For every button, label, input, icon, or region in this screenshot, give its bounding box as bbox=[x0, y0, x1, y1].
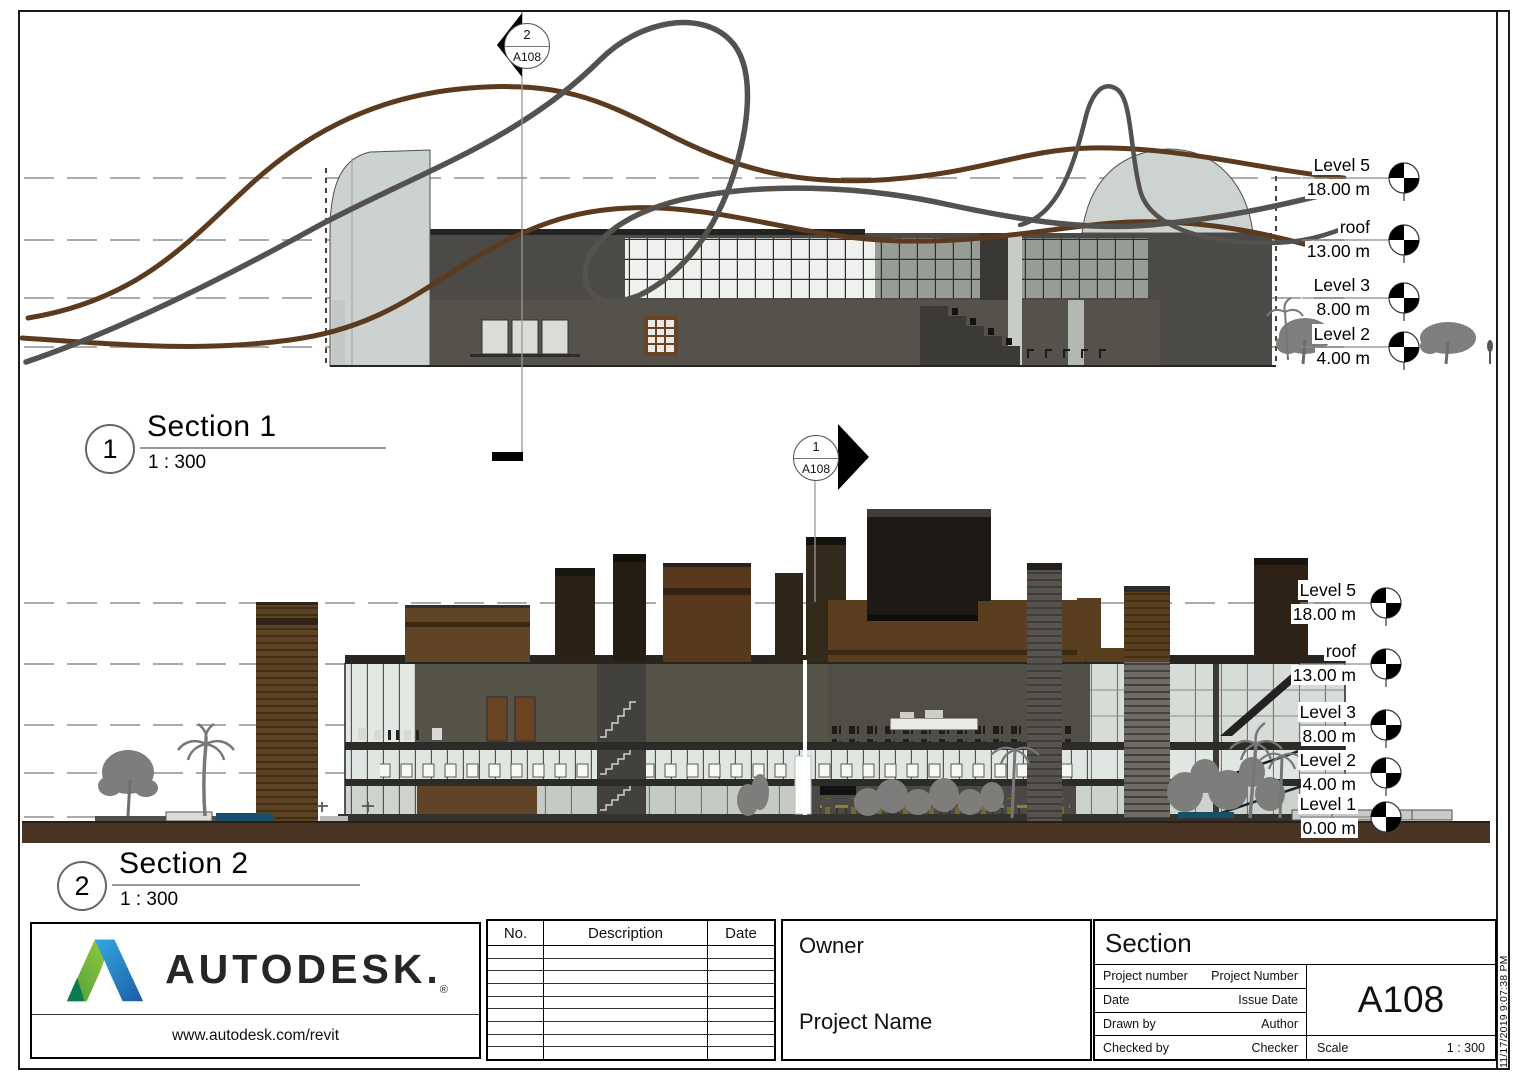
autodesk-logo-icon bbox=[61, 931, 149, 1007]
revision-row bbox=[488, 1022, 774, 1035]
viewport2-number-bubble: 2 bbox=[57, 861, 107, 911]
level-label: Level 1 bbox=[1238, 796, 1358, 814]
revision-rows bbox=[488, 946, 774, 1059]
level-elevation: 18.00 m bbox=[1238, 606, 1358, 624]
level-label: Level 5 bbox=[1252, 157, 1372, 175]
section-arrow-icon bbox=[838, 424, 869, 490]
marker-detail-number: 1 bbox=[794, 436, 838, 459]
sheet-title: Section bbox=[1095, 921, 1495, 965]
level-elevation: 18.00 m bbox=[1252, 181, 1372, 199]
scale-field: Scale1 : 300 bbox=[1307, 1036, 1495, 1059]
level-elevation: 4.00 m bbox=[1252, 350, 1372, 368]
owner-label: Owner bbox=[799, 933, 1074, 959]
viewport-number: 1 bbox=[102, 434, 117, 465]
viewport2-title[interactable]: Section 2 bbox=[119, 847, 249, 881]
marker-detail-number: 2 bbox=[505, 24, 549, 47]
section1-drawing bbox=[326, 149, 1276, 367]
project-name-label: Project Name bbox=[799, 1009, 932, 1035]
level-elevation: 0.00 m bbox=[1238, 820, 1358, 838]
revision-col-no: No. bbox=[488, 921, 544, 945]
field-checked-by: Checked byChecker bbox=[1095, 1036, 1307, 1059]
field-drawn-by: Drawn byAuthor bbox=[1095, 1013, 1307, 1037]
revision-row bbox=[488, 959, 774, 972]
level-elevation: 13.00 m bbox=[1252, 243, 1372, 261]
revision-row bbox=[488, 997, 774, 1010]
field-date: DateIssue Date bbox=[1095, 989, 1307, 1013]
owner-panel: Owner Project Name bbox=[781, 919, 1092, 1061]
level-elevation: 13.00 m bbox=[1238, 667, 1358, 685]
revision-table-header: No. Description Date bbox=[488, 921, 774, 946]
viewport1-title[interactable]: Section 1 bbox=[147, 410, 277, 444]
section-marker-mid[interactable]: 1 A108 bbox=[793, 435, 839, 481]
viewport1-number-bubble: 1 bbox=[85, 424, 135, 474]
level-label: Level 5 bbox=[1238, 582, 1358, 600]
level-elevation: 4.00 m bbox=[1238, 776, 1358, 794]
autodesk-url[interactable]: www.autodesk.com/revit bbox=[32, 1014, 479, 1057]
viewport2-scale: 1 : 300 bbox=[120, 889, 178, 911]
logo-panel: AUTODESK.® www.autodesk.com/revit bbox=[30, 922, 481, 1059]
marker-sheet-number: A108 bbox=[794, 459, 838, 481]
revision-row bbox=[488, 1047, 774, 1059]
plot-timestamp: 11/17/2019 9:07:38 PM bbox=[1498, 926, 1512, 1068]
revision-col-date: Date bbox=[708, 921, 774, 945]
sheet-info-panel: Section Project numberProject Number A10… bbox=[1093, 919, 1497, 1061]
revision-table: No. Description Date bbox=[486, 919, 776, 1061]
registered-mark: ® bbox=[440, 984, 448, 996]
level-label: Level 2 bbox=[1252, 326, 1372, 344]
section-marker-top[interactable]: 2 A108 bbox=[504, 23, 550, 69]
viewport2-title-line bbox=[112, 884, 360, 886]
revision-row bbox=[488, 971, 774, 984]
revision-col-description: Description bbox=[544, 921, 708, 945]
revision-row bbox=[488, 984, 774, 997]
sheet-number: A108 bbox=[1307, 965, 1495, 1036]
revision-row bbox=[488, 1009, 774, 1022]
viewport1-title-line bbox=[140, 447, 386, 449]
viewport-number: 2 bbox=[74, 871, 89, 902]
drawing-sheet: 2 A108 1 A108 1 Section 1 1 : 300 2 Sect… bbox=[0, 0, 1528, 1080]
level-elevation: 8.00 m bbox=[1252, 301, 1372, 319]
level-elevation: 8.00 m bbox=[1238, 728, 1358, 746]
level-label: Level 2 bbox=[1238, 752, 1358, 770]
paned-window bbox=[644, 316, 678, 356]
marker-sheet-number: A108 bbox=[505, 47, 549, 69]
viewport1-scale: 1 : 300 bbox=[148, 452, 206, 474]
revision-row bbox=[488, 1035, 774, 1048]
revision-row bbox=[488, 946, 774, 959]
field-project-number: Project numberProject Number bbox=[1095, 965, 1307, 989]
autodesk-wordmark: AUTODESK. bbox=[165, 946, 442, 992]
level-label: roof bbox=[1252, 219, 1372, 237]
level-label: Level 3 bbox=[1252, 277, 1372, 295]
level-label: roof bbox=[1238, 643, 1358, 661]
level-label: Level 3 bbox=[1238, 704, 1358, 722]
